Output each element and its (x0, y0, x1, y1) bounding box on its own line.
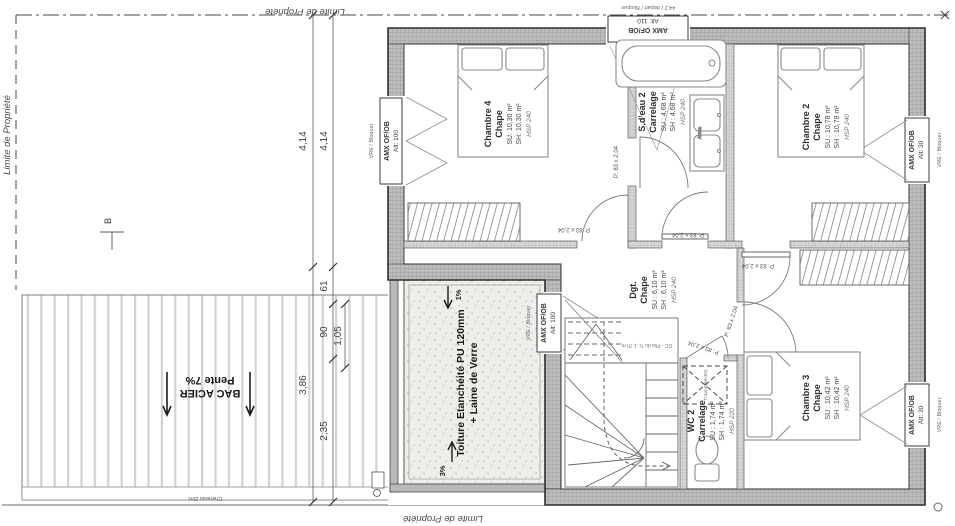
vanity-label: Atena (697, 127, 702, 139)
chambre3-finish: Chape (812, 384, 822, 412)
toiture-line2: + Laine de Verre (468, 342, 480, 423)
closet-chambre3 (800, 250, 909, 285)
wc2-name: WC 2 (686, 410, 696, 433)
building: Toiture Etanchéité PU 120mm + Laine de V… (369, 4, 943, 511)
window-4-alt: Alt: 100 (550, 312, 557, 334)
window-5-name: AMX OF/OB (909, 395, 916, 435)
chambre3-sh: SH : 10,42 m² (834, 376, 841, 420)
window-4-note: VRE / Bloquer (526, 305, 532, 340)
floor-plan-page: Limite de Propriété Limite de Propriété … (0, 0, 955, 526)
bac-acier-zone: Cheneau Zinc BAC ACIER Pente 7% (22, 295, 398, 501)
dim-90: 90 (319, 326, 330, 338)
bac-acier-label: BAC ACIER Pente 7% (180, 374, 241, 399)
vanity (690, 95, 724, 171)
window-5-alt: Alt: 30 (918, 405, 925, 424)
window-2-note: 44.2 / départ / Bloquer (621, 4, 676, 10)
wall-wc-top (724, 355, 737, 361)
trappe-label: Trappe(60x60) (703, 369, 709, 401)
chambre2-hsp: HSP 240 (844, 114, 851, 140)
dgt-su: SU : 6,10 m² (652, 270, 659, 310)
chambre2-sh: SH : 10,78 m² (834, 105, 841, 149)
door-label-chambre4: P: 83 x 2,04 (557, 226, 590, 232)
window-3-note: VRE / Bloquer (937, 132, 943, 167)
window-1-alt: Alt: 100 (393, 130, 400, 152)
dgt-name: Dgt. (628, 281, 638, 299)
dim-414-right: 4,14 (319, 131, 330, 151)
chambre3-name: Chambre 3 (801, 375, 811, 422)
chambre2-su: SU : 10,78 m² (825, 105, 832, 149)
window-1-name: AMX OF/OB (384, 121, 391, 161)
window-3-name: AMX OF/OB (909, 130, 916, 170)
wall-corridor-1 (404, 241, 577, 248)
dim-105: 1,05 (333, 326, 344, 346)
chambre4-sh: SH: 10,30 m² (516, 103, 523, 145)
parapet-bottom (390, 484, 561, 492)
boundary-label-left: Limite de Propriété (2, 95, 13, 175)
dim-386: 3,86 (298, 375, 309, 395)
chambre4-su: SU: 10,30 m² (507, 103, 514, 145)
chambre2-name: Chambre 2 (801, 104, 811, 151)
slope-label-1pct: 1% (454, 289, 463, 300)
window-5-note: VRE / Bloquer (937, 397, 943, 432)
wall-dgt-ch3-b (737, 355, 744, 489)
door-label-sdeau-south: P: 83 x 2,04 (671, 231, 704, 237)
corner-pipe (934, 503, 942, 511)
wc2-finish: Carrelage (697, 400, 707, 442)
dim-414-left: 4,14 (298, 131, 309, 151)
chambre2-finish: Chape (812, 113, 822, 141)
wall-corridor-4 (790, 241, 909, 248)
wall-corridor-3 (708, 241, 742, 248)
wall-notch (388, 264, 561, 280)
chambre4-finish: Chape (494, 110, 504, 138)
bac-acier-title: BAC ACIER (180, 387, 241, 399)
rainwater-outlet (372, 472, 384, 488)
dim-61: 61 (319, 280, 330, 292)
door-label-sdeau-west: P: 83 x 2,04 (614, 145, 620, 178)
closet-chambre4 (408, 203, 520, 241)
dgt-finish: Chape (639, 276, 649, 304)
section-marker-b: B (100, 218, 124, 250)
chambre3-su: SU : 10,42 m² (825, 376, 832, 420)
toiture-line1: Toiture Etanchéité PU 120mm (455, 309, 467, 456)
sdeau2-finish: Carrelage (648, 91, 658, 133)
floor-plan-canvas: Limite de Propriété Limite de Propriété … (0, 0, 955, 526)
wall-ch4-sdeau-b (628, 186, 636, 248)
bed-chambre4 (458, 45, 548, 157)
window-4-name: AMX OF/OB (541, 303, 548, 343)
door-label-dgt: P: 83 x 2,04 (741, 262, 774, 268)
marker-b-label: B (103, 218, 113, 224)
wc2-hsp: HSP 220 (729, 408, 736, 434)
boundary-label-bottom: Limite de Propriété (403, 513, 483, 524)
chambre4-name: Chambre 4 (483, 101, 493, 148)
rainwater-pipe (374, 490, 381, 497)
wall-bottom (545, 489, 925, 505)
dgt-sh: SH : 6,10 m² (661, 270, 668, 310)
wall-sdeau-ch2 (726, 44, 734, 248)
slope-label-3pct: 3% (438, 465, 447, 476)
closet-chambre2 (812, 203, 909, 241)
marker-b-line (100, 232, 124, 250)
bac-acier-slope: Pente 7% (185, 374, 234, 386)
dgt-hsp: HSP 240 (671, 277, 678, 303)
stairs-guardrail-note: GC - Plia du Tr. 1,70 m (622, 342, 673, 348)
dim-235: 2,35 (319, 421, 330, 441)
gutter-label: Cheneau Zinc (188, 495, 222, 501)
wc2-sh: SH : 1,74 m² (719, 401, 726, 441)
chambre4-hsp: HSP 240 (526, 111, 533, 137)
sdeau2-name: S.d'eau 2 (637, 92, 647, 131)
sdeau2-su: SU : 4,68 m² (661, 92, 668, 132)
chambre3-hsp: HSP 240 (844, 385, 851, 411)
sdeau2-sh: SH : 4,68 m² (670, 92, 677, 132)
bathtub (616, 40, 726, 87)
wc2-su: SU : 1,74 m² (710, 401, 717, 441)
door-leaf-dgt (742, 252, 790, 257)
window-2-alt: Alt: 110 (637, 17, 659, 24)
wall-corridor-2 (628, 241, 662, 248)
window-2-name: AMX OF/OB (628, 26, 668, 33)
sdeau2-hsp: HSP 240 (680, 99, 687, 125)
stairs (565, 300, 678, 487)
window-3-alt: Alt: 30 (918, 140, 925, 159)
parapet-left (390, 280, 398, 492)
window-1-note: VRE / Bloquer (369, 123, 375, 158)
